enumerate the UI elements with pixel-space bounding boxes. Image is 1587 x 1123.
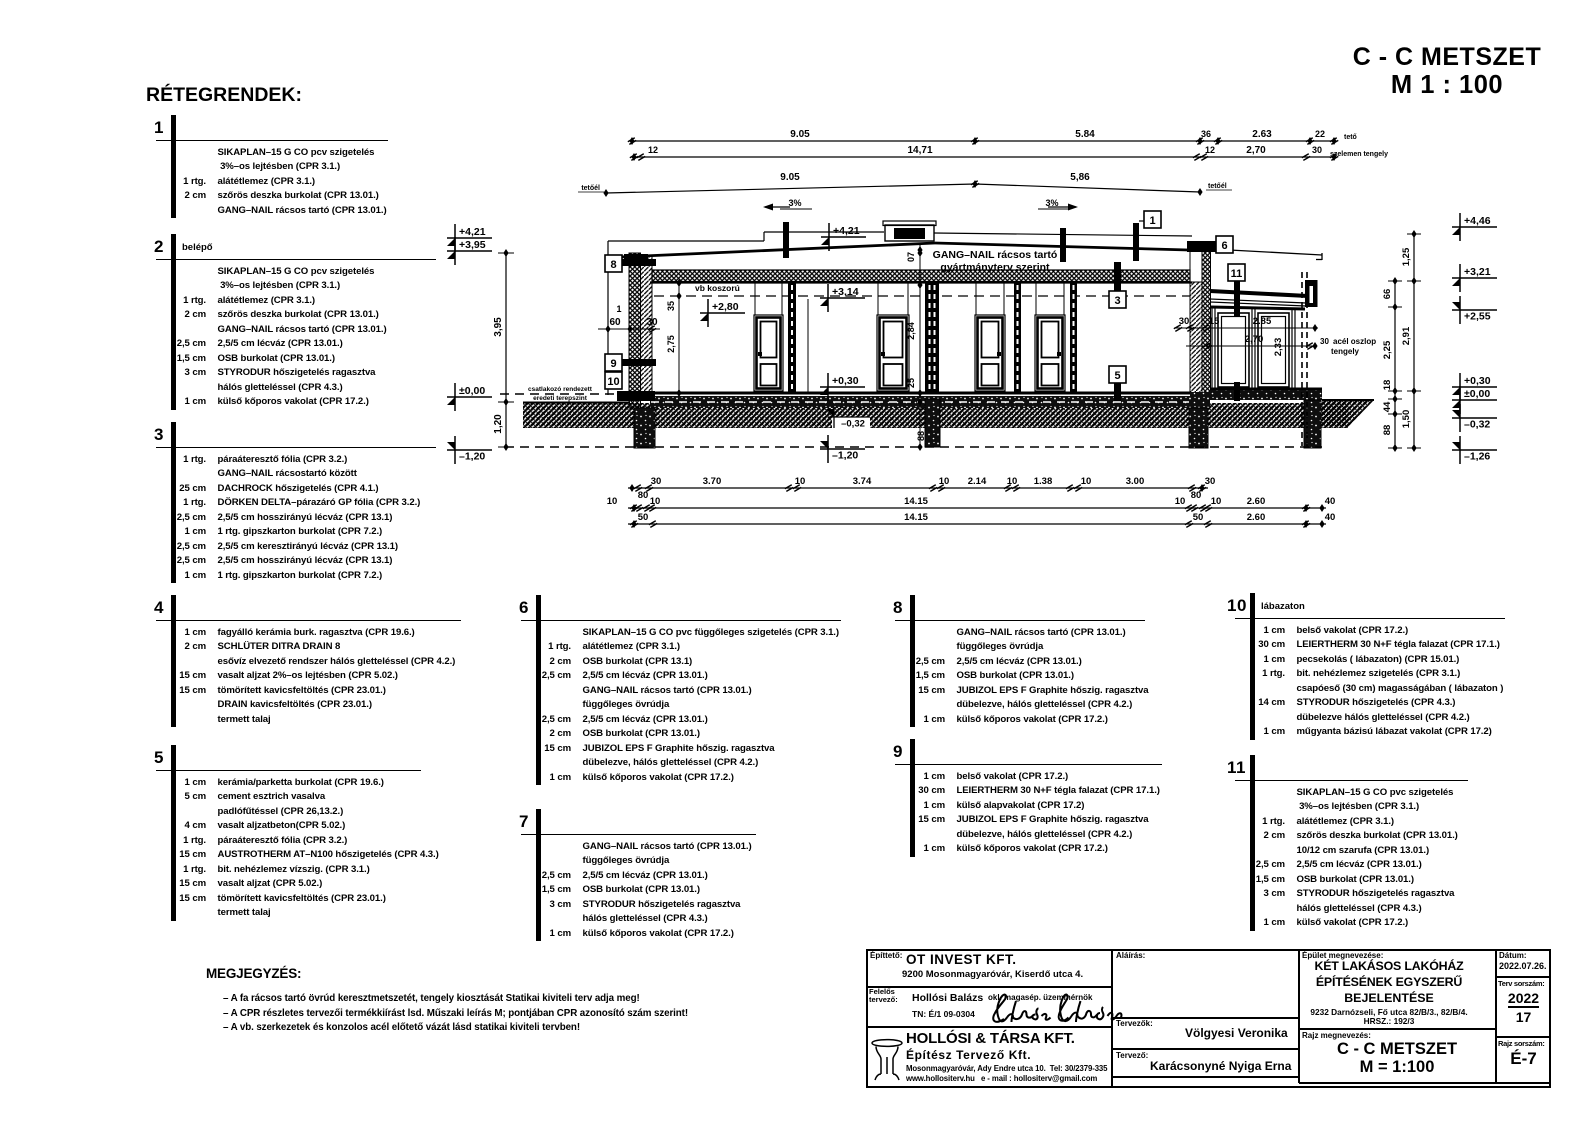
svg-text:tetőél: tetőél: [1208, 183, 1227, 190]
svg-text:36: 36: [1201, 129, 1211, 139]
svg-text:35: 35: [666, 301, 676, 311]
svg-text:15: 15: [1209, 316, 1220, 327]
svg-text:GANG–NAIL rácsos tartó: GANG–NAIL rácsos tartó: [933, 249, 1058, 261]
svg-text:1.38: 1.38: [1034, 476, 1053, 487]
svg-text:+2,55: +2,55: [1464, 311, 1491, 323]
svg-text:30: 30: [1179, 316, 1190, 327]
svg-text:2.63: 2.63: [1252, 129, 1272, 140]
svg-text:–1,26: –1,26: [1464, 451, 1490, 463]
svg-text:–0,32: –0,32: [841, 419, 865, 430]
svg-text:66: 66: [1382, 289, 1393, 300]
svg-text:10: 10: [795, 476, 806, 487]
svg-text:88: 88: [916, 431, 926, 441]
svg-text:25: 25: [906, 378, 916, 388]
svg-text:+4,21: +4,21: [459, 226, 486, 238]
svg-text:80: 80: [1191, 490, 1202, 501]
svg-text:9: 9: [610, 358, 616, 370]
svg-text:80: 80: [638, 490, 649, 501]
svg-text:tetőél: tetőél: [581, 185, 600, 192]
svg-text:10: 10: [1007, 476, 1018, 487]
svg-text:vb koszorú: vb koszorú: [695, 283, 740, 293]
svg-text:2,70: 2,70: [1245, 334, 1264, 345]
svg-text:14,71: 14,71: [907, 145, 932, 156]
svg-text:5.84: 5.84: [1075, 129, 1095, 140]
svg-text:gyártmányterv szerint: gyártmányterv szerint: [940, 262, 1050, 274]
svg-text:+3,95: +3,95: [459, 239, 486, 251]
svg-text:5: 5: [1114, 370, 1120, 382]
svg-text:10: 10: [607, 496, 618, 507]
svg-text:14.15: 14.15: [904, 496, 928, 507]
svg-text:12: 12: [1205, 145, 1215, 155]
svg-text:±0,00: ±0,00: [459, 385, 485, 397]
svg-text:eredeti terepszint: eredeti terepszint: [533, 395, 588, 402]
svg-text:+0,30: +0,30: [1464, 375, 1491, 387]
svg-text:40: 40: [1325, 496, 1336, 507]
svg-text:14.15: 14.15: [904, 512, 928, 523]
svg-text:1,20: 1,20: [493, 414, 504, 434]
svg-text:5,86: 5,86: [1070, 172, 1090, 183]
svg-text:10: 10: [607, 376, 619, 388]
svg-text:44: 44: [1382, 401, 1393, 412]
svg-text:60: 60: [609, 317, 621, 328]
svg-text:acél oszlop: acél oszlop: [1333, 337, 1376, 346]
svg-text:2,33: 2,33: [1273, 338, 1284, 357]
svg-text:6: 6: [1221, 240, 1227, 252]
svg-text:+0,30: +0,30: [832, 375, 859, 387]
svg-text:2,25: 2,25: [1382, 340, 1393, 359]
svg-text:3.00: 3.00: [1126, 476, 1145, 487]
svg-text:1,25: 1,25: [1401, 247, 1412, 266]
svg-text:±0,00: ±0,00: [1464, 388, 1490, 400]
svg-text:10: 10: [1211, 496, 1222, 507]
svg-text:1: 1: [1149, 215, 1155, 227]
svg-text:8: 8: [610, 259, 616, 271]
svg-text:1: 1: [616, 304, 621, 314]
svg-text:3: 3: [1114, 295, 1120, 307]
svg-text:10: 10: [650, 496, 661, 507]
svg-text:30: 30: [651, 476, 662, 487]
svg-text:2,84: 2,84: [906, 322, 916, 340]
svg-text:2,70: 2,70: [1246, 145, 1266, 156]
svg-text:+4,21: +4,21: [833, 225, 860, 237]
svg-text:10: 10: [1081, 476, 1092, 487]
svg-text:+2,80: +2,80: [712, 301, 739, 313]
svg-text:1,50: 1,50: [1401, 410, 1412, 429]
svg-text:2.14: 2.14: [968, 476, 987, 487]
svg-text:30: 30: [1205, 476, 1216, 487]
svg-text:3.74: 3.74: [853, 476, 872, 487]
svg-text:3.70: 3.70: [703, 476, 722, 487]
svg-text:10: 10: [1175, 496, 1186, 507]
svg-text:07: 07: [906, 252, 916, 262]
svg-text:10: 10: [939, 476, 950, 487]
svg-text:tengely: tengely: [1331, 347, 1360, 356]
svg-text:szelemen tengely: szelemen tengely: [1330, 151, 1388, 158]
svg-text:2.85: 2.85: [1253, 316, 1272, 327]
svg-text:2.60: 2.60: [1247, 496, 1266, 507]
svg-text:2.60: 2.60: [1247, 512, 1266, 523]
svg-text:tető: tető: [1344, 134, 1357, 141]
svg-text:2,91: 2,91: [1401, 326, 1412, 345]
svg-text:50: 50: [638, 512, 649, 523]
svg-text:50: 50: [1193, 512, 1204, 523]
svg-text:30: 30: [646, 317, 658, 328]
svg-text:–0,32: –0,32: [1464, 419, 1490, 431]
svg-text:18: 18: [1382, 380, 1393, 391]
svg-text:–1,20: –1,20: [459, 451, 485, 463]
svg-text:–1,20: –1,20: [832, 450, 858, 462]
svg-text:12: 12: [648, 145, 658, 155]
svg-text:11: 11: [1231, 268, 1243, 280]
svg-text:40: 40: [1325, 512, 1336, 523]
svg-text:+3,21: +3,21: [1464, 266, 1491, 278]
svg-text:2,75: 2,75: [666, 335, 676, 353]
svg-text:+3,14: +3,14: [832, 286, 859, 298]
svg-text:csatlakozó rendezett: csatlakozó rendezett: [528, 386, 593, 393]
svg-text:9.05: 9.05: [790, 129, 810, 140]
svg-text:3%: 3%: [788, 198, 801, 208]
svg-text:9.05: 9.05: [780, 172, 800, 183]
svg-text:3,95: 3,95: [493, 317, 504, 337]
svg-text:30: 30: [1312, 145, 1322, 155]
svg-text:88: 88: [1382, 425, 1393, 436]
svg-text:30: 30: [1320, 337, 1329, 346]
svg-text:+4,46: +4,46: [1464, 215, 1491, 227]
svg-text:22: 22: [1315, 129, 1325, 139]
